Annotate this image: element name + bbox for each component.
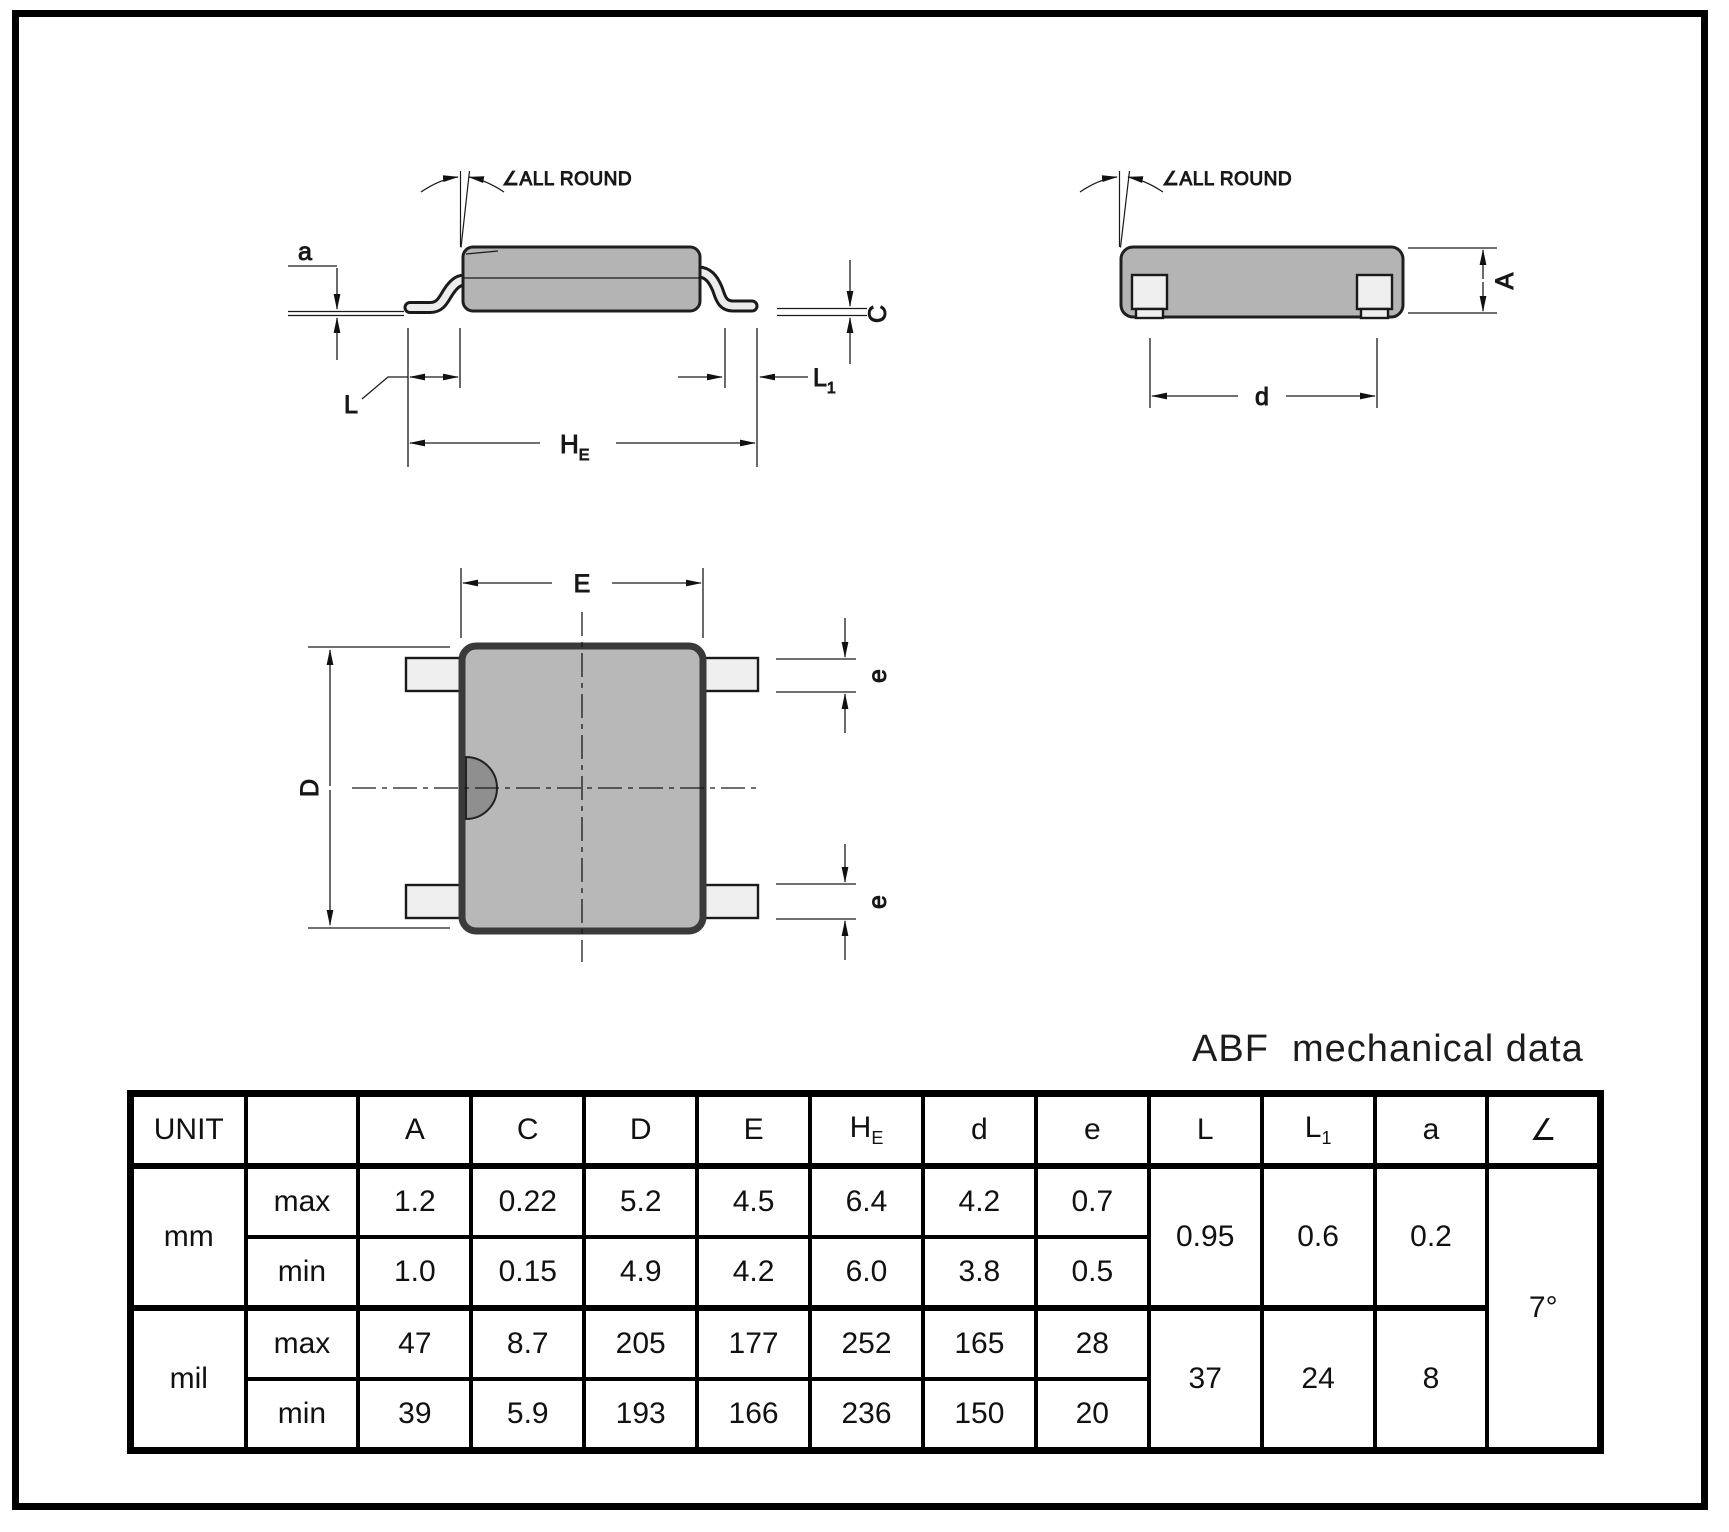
side-view-a-dim [288, 266, 404, 360]
cell: 177 [697, 1308, 810, 1379]
cell: 150 [923, 1379, 1036, 1451]
mm-max-row: mm max 1.2 0.22 5.2 4.5 6.4 4.2 0.7 0.95… [131, 1166, 1601, 1237]
side-view-package-body [463, 247, 700, 311]
cell: 1.2 [358, 1166, 471, 1237]
header-L: L [1149, 1094, 1262, 1167]
top-view-lead-top-left [406, 658, 461, 691]
cell: 165 [923, 1308, 1036, 1379]
cell: 0.5 [1036, 1237, 1149, 1308]
mil-max-row: mil max 47 8.7 205 177 252 165 28 37 24 … [131, 1308, 1601, 1379]
header-unit: UNIT [131, 1094, 246, 1167]
side-view: ∠ALL ROUND a L [288, 169, 892, 467]
cell-mm-L: 0.95 [1149, 1166, 1262, 1308]
unit-mm: mm [131, 1166, 246, 1308]
end-view-all-round-label: ∠ALL ROUND [1162, 169, 1292, 190]
header-A: A [358, 1094, 471, 1167]
end-view-d-label: d [1255, 383, 1269, 411]
top-view-e-top-dim [776, 618, 856, 733]
side-view-L-dim [362, 328, 460, 467]
header-HE: HE [810, 1094, 923, 1167]
top-view-E-label: E [574, 570, 591, 598]
header-blank [246, 1094, 359, 1167]
cell: 1.0 [358, 1237, 471, 1308]
cell: 193 [584, 1379, 697, 1451]
datasheet-page: ∠ALL ROUND a L [0, 0, 1729, 1532]
cell-mm-a: 0.2 [1375, 1166, 1488, 1308]
header-a: a [1375, 1094, 1488, 1167]
end-view: ∠ALL ROUND d A [1080, 169, 1519, 411]
top-view-e-bottom-dim [776, 844, 856, 960]
side-view-C-dim [777, 260, 867, 364]
cell: 0.22 [471, 1166, 584, 1237]
cell: 20 [1036, 1379, 1149, 1451]
header-row: UNIT A C D E HE d e L L1 a ∠ [131, 1094, 1601, 1167]
cell: 236 [810, 1379, 923, 1451]
side-view-right-lead [698, 272, 752, 306]
cell: 166 [697, 1379, 810, 1451]
top-view-lead-top-right [704, 658, 758, 691]
side-view-all-round-label: ∠ALL ROUND [502, 169, 632, 190]
cell: 252 [810, 1308, 923, 1379]
side-view-L1-dim [678, 328, 808, 467]
top-view-lead-bottom-left [406, 885, 461, 918]
cell-mil-L1: 24 [1262, 1308, 1375, 1451]
mechanical-data-table: UNIT A C D E HE d e L L1 a ∠ mm max 1.2 … [127, 1090, 1604, 1454]
cell: 3.8 [923, 1237, 1036, 1308]
mm-max-label: max [246, 1166, 359, 1237]
cell: 6.0 [810, 1237, 923, 1308]
cell: 6.4 [810, 1166, 923, 1237]
cell: 4.2 [923, 1166, 1036, 1237]
side-view-left-lead [410, 280, 466, 308]
mil-max-label: max [246, 1308, 359, 1379]
header-angle: ∠ [1487, 1094, 1600, 1167]
header-C: C [471, 1094, 584, 1167]
side-view-C-label: C [864, 305, 892, 323]
cell-mm-L1: 0.6 [1262, 1166, 1375, 1308]
header-D: D [584, 1094, 697, 1167]
side-view-L1-label: L1 [813, 364, 836, 397]
cell: 39 [358, 1379, 471, 1451]
end-view-left-pad [1132, 275, 1167, 318]
cell: 0.15 [471, 1237, 584, 1308]
header-d: d [923, 1094, 1036, 1167]
cell: 47 [358, 1308, 471, 1379]
cell: 28 [1036, 1308, 1149, 1379]
cell: 8.7 [471, 1308, 584, 1379]
cell-angle-value: 7° [1487, 1166, 1600, 1451]
end-view-angle-lines [1080, 171, 1163, 248]
top-view-e-top-label: e [864, 669, 892, 683]
cell: 5.9 [471, 1379, 584, 1451]
cell-mil-L: 37 [1149, 1308, 1262, 1451]
unit-mil: mil [131, 1308, 246, 1451]
side-view-a-label: a [298, 238, 312, 266]
top-view-D-label: D [296, 779, 324, 797]
end-view-A-label: A [1491, 272, 1519, 289]
header-E: E [697, 1094, 810, 1167]
side-view-HE-label: HE [560, 429, 589, 464]
cell: 4.2 [697, 1237, 810, 1308]
header-e: e [1036, 1094, 1149, 1167]
mil-min-label: min [246, 1379, 359, 1451]
cell: 0.7 [1036, 1166, 1149, 1237]
header-L1: L1 [1262, 1094, 1375, 1167]
cell: 4.9 [584, 1237, 697, 1308]
cell: 5.2 [584, 1166, 697, 1237]
cell: 205 [584, 1308, 697, 1379]
end-view-right-pad [1357, 275, 1392, 318]
top-view-lead-bottom-right [704, 885, 758, 918]
side-view-L-label: L [344, 391, 358, 419]
table-title: ABF mechanical data [1192, 1028, 1584, 1071]
cell-mil-a: 8 [1375, 1308, 1488, 1451]
top-view-e-bottom-label: e [864, 895, 892, 909]
mm-min-label: min [246, 1237, 359, 1308]
end-view-A-dim [1408, 248, 1497, 313]
cell: 4.5 [697, 1166, 810, 1237]
top-view: E D e e [296, 568, 892, 962]
side-view-angle-lines [421, 171, 504, 248]
